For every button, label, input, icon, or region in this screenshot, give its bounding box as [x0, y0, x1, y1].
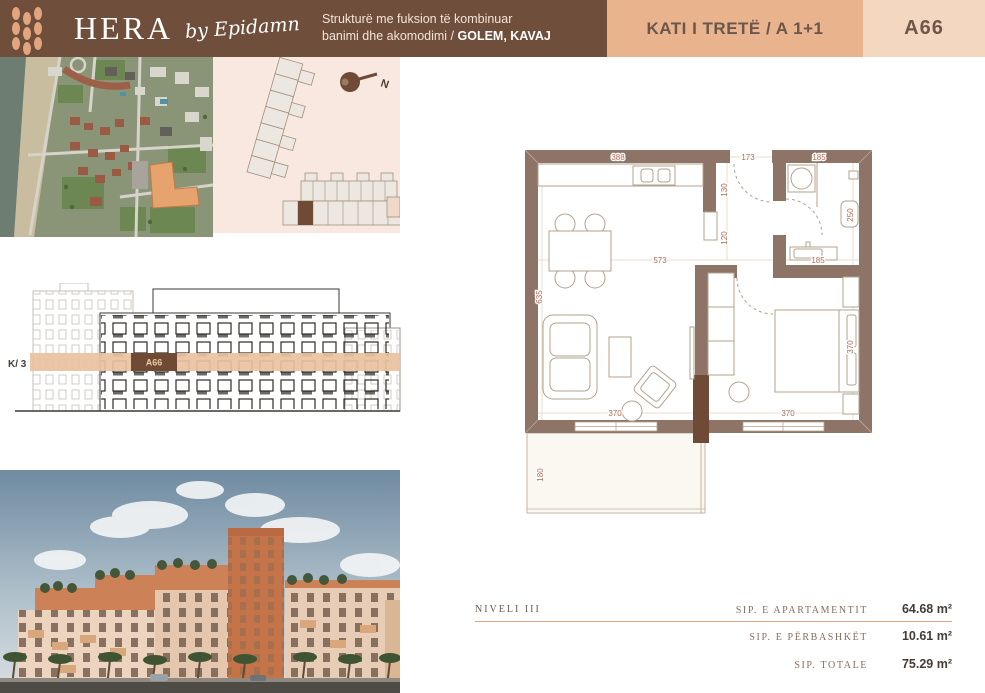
side-table — [622, 401, 642, 421]
building-wing-left — [247, 57, 316, 182]
aerial-photo — [0, 57, 213, 237]
tv — [690, 327, 694, 379]
row-value: 75.29 m² — [888, 657, 952, 671]
structural-column — [693, 375, 709, 443]
nightstand — [843, 394, 859, 414]
pillow — [847, 353, 856, 385]
brand-byline: by Epidamn — [184, 1, 302, 56]
kitchen-counter — [538, 164, 703, 186]
dim-living-width: 573 — [653, 256, 667, 265]
floor-highlight-band — [30, 353, 400, 371]
entry-door-arc — [734, 164, 772, 202]
row-label: SIP. E PËRBASHKËT — [749, 632, 868, 643]
brand-logo: HERA by Epidamn — [12, 5, 300, 52]
header-bar: HERA by Epidamn Strukturë me fuksion të … — [0, 0, 985, 57]
header-unit-section: A66 — [863, 0, 985, 57]
stool — [729, 382, 749, 402]
dim-vanity-width: 185 — [811, 256, 825, 265]
dim-living-window: 370 — [608, 409, 622, 418]
kitchen-cabinet — [704, 212, 717, 240]
street — [0, 682, 400, 693]
bedroom-door-arc — [737, 278, 773, 314]
dim-bath-depth: 250 — [846, 208, 855, 222]
sidewalk — [0, 678, 400, 682]
level-label: NIVELI III — [475, 604, 541, 615]
dim-balcony-depth: 180 — [536, 468, 545, 482]
header-floor-section: KATI I TRETË / A 1+1 — [607, 0, 863, 57]
building-render — [0, 470, 400, 693]
aerial-photo-graphic — [0, 57, 213, 237]
dim-hall-upper: 130 — [720, 183, 729, 197]
dim-bedroom-depth: 370 — [846, 340, 855, 354]
site-key-plan: N — [213, 57, 400, 233]
table-row: SIP. E PËRBASHKËT 10.61 m² — [475, 627, 952, 645]
north-label: N — [379, 77, 390, 91]
dim-hall-lower: 120 — [720, 231, 729, 245]
dim-living-depth: 635 — [535, 290, 544, 304]
table-divider — [475, 621, 952, 622]
table-row: SIP. E APARTAMENTIT 64.68 m² — [475, 600, 952, 618]
highlighted-unit — [298, 201, 313, 225]
location-label: GOLEM, KAVAJ — [458, 29, 551, 43]
faucet — [806, 242, 810, 247]
floor-plan: 388 173 185 130 120 573 185 635 250 370 … — [505, 135, 885, 525]
row-value: 64.68 m² — [888, 602, 952, 616]
subtitle-line1: Strukturë me fuksion të kombinuar — [322, 12, 512, 26]
balcony — [527, 433, 705, 513]
wardrobe — [708, 273, 734, 375]
brand-name: HERA — [74, 5, 173, 52]
armchair — [633, 365, 678, 410]
dim-kitchen-width: 388 — [611, 153, 625, 162]
dim-bedroom-window: 370 — [781, 409, 795, 418]
row-label: SIP. TOTALE — [794, 660, 868, 671]
dining-table — [549, 231, 611, 271]
header-subtitle: Strukturë me fuksion të kombinuar banimi… — [322, 11, 551, 45]
elevation-unit-code: A66 — [146, 358, 163, 368]
unit-code-badge: A66 — [904, 17, 944, 40]
shower-head — [849, 171, 858, 179]
elevation-level-label: K/ 3 — [8, 359, 27, 370]
table-row: SIP. TOTALE 75.29 m² — [475, 655, 952, 673]
floor-label: KATI I TRETË / A 1+1 — [646, 19, 823, 39]
area-summary-table: NIVELI III SIP. E APARTAMENTIT 64.68 m² … — [475, 600, 952, 673]
subtitle-line2: banimi dhe akomodimi — [322, 29, 447, 43]
dim-entry-width: 173 — [741, 153, 755, 162]
brochure-page: HERA by Epidamn Strukturë me fuksion të … — [0, 0, 985, 693]
row-label: SIP. E APARTAMENTIT — [736, 605, 868, 616]
dim-bath-width: 185 — [812, 153, 826, 162]
row-value: 10.61 m² — [888, 629, 952, 643]
header-brand-section: HERA by Epidamn Strukturë me fuksion të … — [0, 0, 607, 57]
elevation-drawing: A66 K/ 3 — [5, 283, 405, 428]
nightstand — [843, 277, 859, 307]
north-compass-icon: N — [340, 72, 390, 92]
grain-logo-icon — [12, 6, 42, 51]
location-separator: / — [451, 29, 458, 43]
coffee-table — [609, 337, 631, 377]
